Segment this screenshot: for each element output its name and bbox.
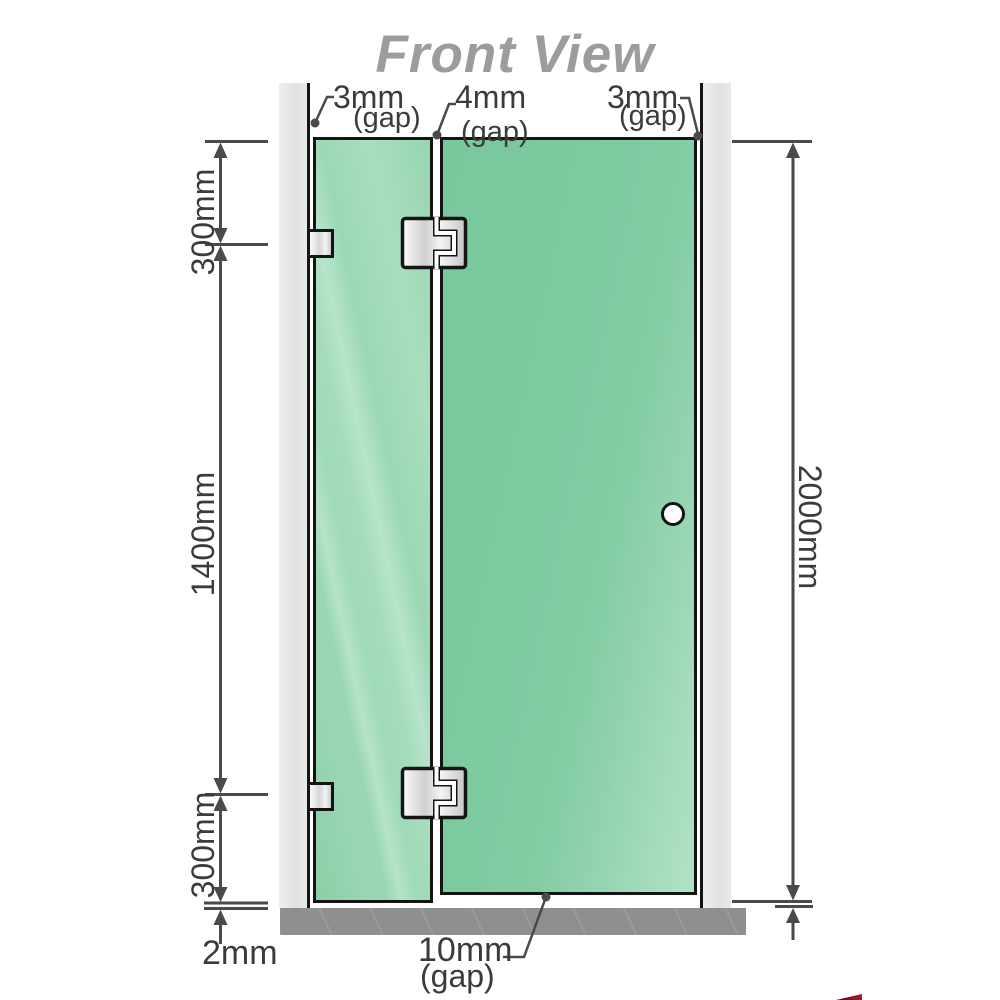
gap-label-middle-value: 4mm [455,81,526,113]
top-wall-bracket [307,229,334,258]
dim-label-2000mm: 2000mm [794,465,826,590]
gap-label-left-suffix: (gap) [353,104,421,133]
logo-fragment [836,994,862,1000]
shower-screen-front-view-diagram: Front View [0,0,1000,1000]
dim-label-2mm: 2mm [202,936,278,970]
dim-label-1400mm: 1400mm [187,472,219,597]
dim-label-top-300mm: 300mm [187,169,219,276]
page-title: Front View [280,24,750,85]
door-handle-knob [661,502,685,526]
door-glass-panel [440,137,697,895]
floor-bar [280,908,746,935]
gap-label-middle-suffix: (gap) [461,118,529,147]
bottom-gap-suffix: (gap) [420,960,495,992]
dim-label-bottom-300mm: 300mm [187,792,219,899]
bottom-wall-bracket [307,782,334,811]
left-wall-channel [279,83,310,908]
right-wall-channel [700,83,731,908]
gap-label-right-suffix: (gap) [619,102,687,131]
